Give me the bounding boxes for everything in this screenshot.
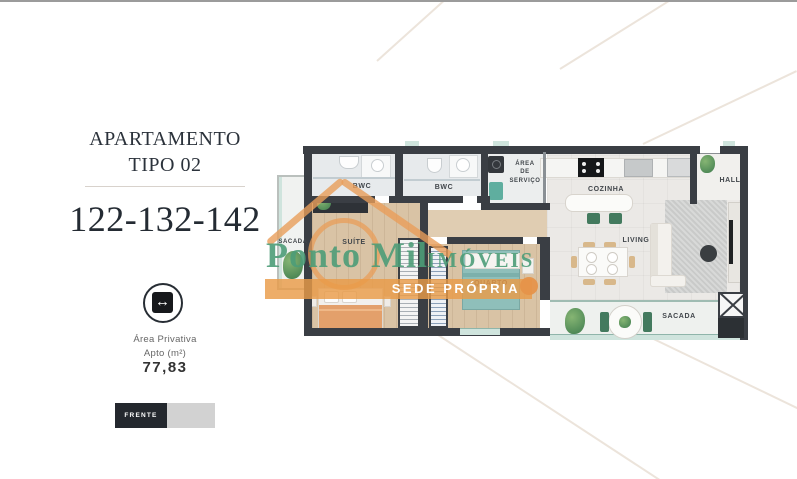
area-value: 77,83 <box>55 359 275 376</box>
dining-table <box>578 247 628 277</box>
title-line1: APARTAMENTO <box>55 126 275 152</box>
coffee-table <box>700 245 717 262</box>
orientation-front-segment: FRENTE <box>115 403 167 428</box>
corridor-floor <box>428 210 547 237</box>
round-sink <box>456 158 470 172</box>
wall <box>540 237 550 300</box>
dining-chair <box>629 256 635 268</box>
wall <box>395 146 403 203</box>
wall <box>303 146 748 154</box>
shaft-hatched <box>718 292 745 318</box>
orientation-back-segment <box>167 403 215 428</box>
kitchen-divider <box>543 152 546 203</box>
door-opening <box>523 237 537 244</box>
laundry-sink <box>489 182 503 200</box>
wall <box>481 203 550 210</box>
shaft-dark <box>718 318 744 338</box>
floorplan-page: APARTAMENTO TIPO 02 122-132-142 ↔ Área P… <box>0 0 797 479</box>
room-label-hall: HALL <box>719 177 740 184</box>
balcony-chair <box>643 312 652 332</box>
dining-chair <box>604 279 616 285</box>
cooktop <box>578 158 604 177</box>
unit-numbers: 122-132-142 <box>55 198 275 240</box>
area-width-icon: ↔ <box>152 292 173 313</box>
dining-chair <box>583 279 595 285</box>
sofa-chaise <box>650 275 686 287</box>
toilet <box>427 158 442 173</box>
room-label-cozinha: COZINHA <box>588 186 624 193</box>
dining-chair <box>571 256 577 268</box>
door-opening <box>463 196 477 203</box>
banner-end-dot <box>520 277 538 295</box>
room-label-servico: ÁREA DE SERVIÇO <box>509 160 540 185</box>
room-label-bwc-social: BWC <box>435 184 454 191</box>
round-sink <box>371 159 384 172</box>
table-plant <box>619 316 631 328</box>
info-panel: APARTAMENTO TIPO 02 122-132-142 ↔ Área P… <box>55 126 275 446</box>
orientation-label: FRENTE <box>124 412 157 419</box>
kitchen-appliance <box>624 159 653 177</box>
washer-door <box>492 160 501 169</box>
sacada-living <box>550 300 746 340</box>
sede-propria-banner: SEDE PRÓPRIA <box>265 279 532 299</box>
title-line2: TIPO 02 <box>55 152 275 178</box>
brand-name: Ponto Mil <box>266 234 428 276</box>
orientation-bar: FRENTE <box>115 403 215 428</box>
shower-glass <box>313 177 395 179</box>
wall <box>304 328 550 336</box>
balcony-chair <box>600 312 609 332</box>
island-stool <box>587 213 600 224</box>
washer-icon <box>488 156 504 173</box>
arrow-glyph: ↔ <box>155 293 170 310</box>
island-stool <box>609 213 622 224</box>
kitchen-island <box>565 194 633 212</box>
area-icon-circle: ↔ <box>143 283 183 323</box>
banner-text: SEDE PRÓPRIA <box>392 279 532 299</box>
hall-plant <box>700 155 715 173</box>
title-divider <box>85 186 245 187</box>
wall <box>690 146 697 204</box>
balcony-rail <box>550 300 746 302</box>
area-label: Área Privativa Apto (m²) <box>55 333 275 362</box>
balcony-plant <box>565 308 585 334</box>
wall <box>481 146 488 203</box>
area-label-line1: Área Privativa <box>55 333 275 347</box>
room-label-sacada-living: SACADA <box>662 313 696 320</box>
page-title: APARTAMENTO TIPO 02 <box>55 126 275 178</box>
toilet <box>339 156 359 169</box>
quarto-window <box>460 328 500 335</box>
tv <box>729 220 733 264</box>
brand-suffix: IMÓVEIS <box>427 248 534 273</box>
shower-glass <box>404 179 480 181</box>
balcony-glass <box>550 334 746 340</box>
entry-door-opening <box>700 146 720 154</box>
room-label-living: LIVING <box>623 237 650 244</box>
